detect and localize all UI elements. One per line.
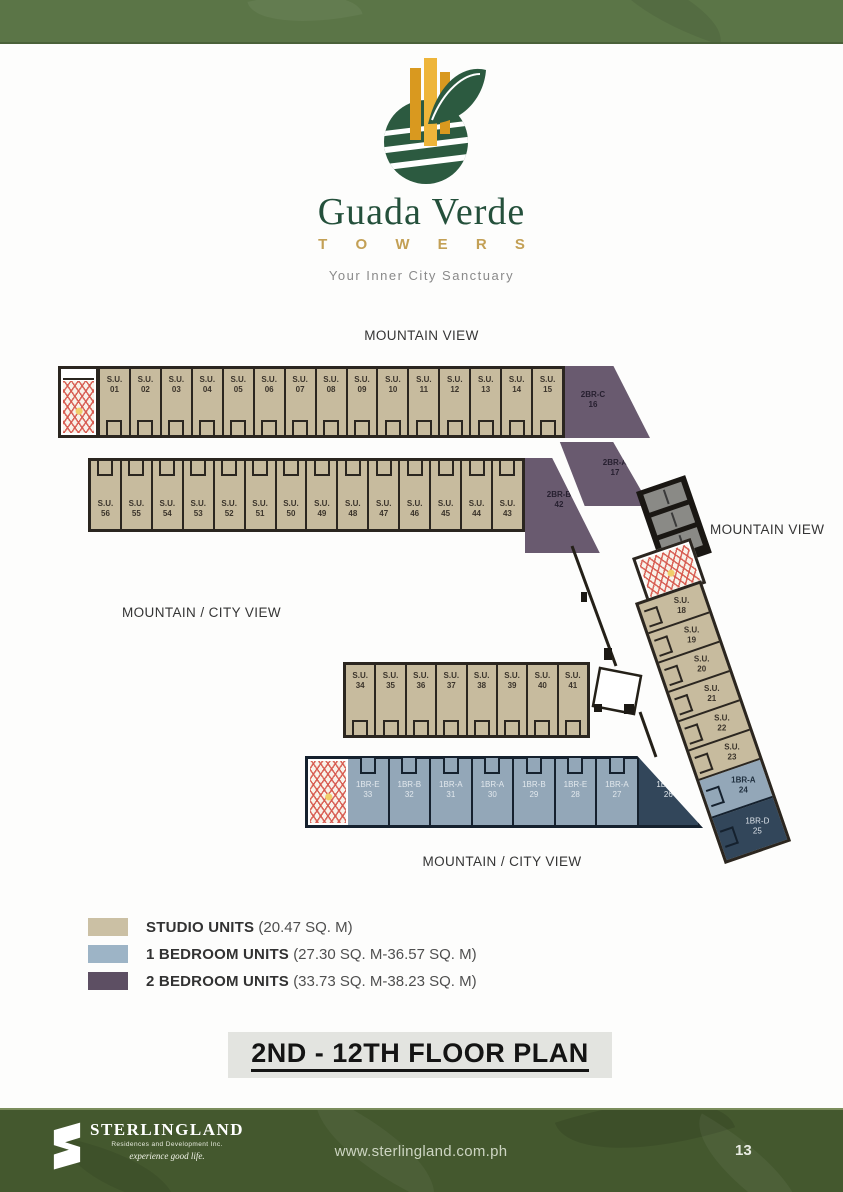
unit-label: S.U.55 xyxy=(122,499,151,519)
unit-door-alcove xyxy=(314,460,330,476)
unit-label: S.U.46 xyxy=(400,499,429,519)
unit-s-u-48: S.U.48 xyxy=(338,461,369,529)
footer-brand-tagline: experience good life. xyxy=(90,1151,244,1161)
unit-s-u-05: S.U.05 xyxy=(224,369,255,435)
unit-label: S.U.21 xyxy=(690,683,734,703)
unit-label: S.U.04 xyxy=(193,369,222,395)
unit-s-u-38: S.U.38 xyxy=(468,665,498,735)
unit-s-u-40: S.U.40 xyxy=(528,665,558,735)
unit-door-alcove xyxy=(354,420,370,436)
unit-door-alcove xyxy=(413,720,429,736)
unit-door-alcove xyxy=(261,420,277,436)
page-number: 13 xyxy=(735,1142,752,1159)
unit-s-u-11: S.U.11 xyxy=(409,369,440,435)
unit-door-alcove xyxy=(230,420,246,436)
unit-1br-a-30: 1BR-A30 xyxy=(473,759,515,825)
unit-s-u-02: S.U.02 xyxy=(131,369,162,435)
unit-door-alcove xyxy=(283,460,299,476)
unit-s-u-49: S.U.49 xyxy=(307,461,338,529)
unit-label: S.U.22 xyxy=(700,713,744,733)
unit-door-alcove xyxy=(159,460,175,476)
unit-door-alcove xyxy=(443,758,459,774)
unit-door-alcove xyxy=(323,420,339,436)
sterlingland-s-icon xyxy=(52,1120,82,1172)
unit-label: S.U.56 xyxy=(91,499,120,519)
unit-label: S.U.40 xyxy=(528,665,556,691)
unit-label: S.U.03 xyxy=(162,369,191,395)
unit-label: S.U.53 xyxy=(184,499,213,519)
website-link[interactable]: www.sterlingland.com.ph xyxy=(271,1143,571,1160)
unit-s-u-55: S.U.55 xyxy=(122,461,153,529)
unit-label: S.U.10 xyxy=(378,369,407,395)
unit-s-u-01: S.U.01 xyxy=(100,369,131,435)
unit-s-u-35: S.U.35 xyxy=(376,665,406,735)
legend-swatch-studio xyxy=(88,918,128,936)
unit-s-u-03: S.U.03 xyxy=(162,369,193,435)
brand-subtitle: T O W E R S xyxy=(0,236,843,253)
unit-2br-c-16: 2BR-C16 xyxy=(565,366,650,438)
unit-label: S.U.52 xyxy=(215,499,244,519)
unit-1br-e-33: 1BR-E33 xyxy=(348,759,390,825)
sterlingland-logo: STERLINGLAND Residences and Development … xyxy=(52,1120,244,1172)
unit-label: 1BR-D25 xyxy=(735,816,779,836)
view-label-right: MOUNTAIN VIEW xyxy=(710,522,824,537)
legend-item-1br: 1 BEDROOM UNITS (27.30 SQ. M-36.57 SQ. M… xyxy=(88,944,477,964)
unit-door-alcove xyxy=(416,420,432,436)
unit-door-alcove xyxy=(128,460,144,476)
unit-door-alcove xyxy=(469,460,485,476)
unit-door-alcove xyxy=(499,460,515,476)
unit-label: S.U.14 xyxy=(502,369,531,395)
unit-door-alcove xyxy=(292,420,308,436)
unit-s-u-51: S.U.51 xyxy=(246,461,277,529)
unit-label: 1BR-E28 xyxy=(556,780,596,800)
unit-label: 1BR-A31 xyxy=(431,780,471,800)
unit-label: 1BR-C26 xyxy=(639,780,698,800)
unit-s-u-45: S.U.45 xyxy=(431,461,462,529)
view-label-left: MOUNTAIN / CITY VIEW xyxy=(122,605,281,620)
unit-door-alcove xyxy=(385,420,401,436)
stair-hatch xyxy=(310,761,346,823)
unit-label: S.U.39 xyxy=(498,665,526,691)
unit-door-alcove xyxy=(443,720,459,736)
unit-door-alcove xyxy=(137,420,153,436)
unit-label: 1BR-B29 xyxy=(514,780,554,800)
legend-swatch-2br xyxy=(88,972,128,990)
unit-s-u-54: S.U.54 xyxy=(153,461,184,529)
unit-label: S.U.15 xyxy=(533,369,562,395)
unit-door-alcove xyxy=(190,460,206,476)
unit-s-u-34: S.U.34 xyxy=(346,665,376,735)
unit-label: S.U.45 xyxy=(431,499,460,519)
stairwell-southwest xyxy=(308,759,348,825)
unit-label: S.U.43 xyxy=(493,499,522,519)
floor-title: 2ND - 12TH FLOOR PLAN xyxy=(251,1038,589,1072)
unit-label: S.U.09 xyxy=(348,369,377,395)
unit-door-alcove xyxy=(509,420,525,436)
unit-s-u-14: S.U.14 xyxy=(502,369,533,435)
legend-item-studio: STUDIO UNITS (20.47 SQ. M) xyxy=(88,917,477,937)
unit-door-alcove xyxy=(376,460,392,476)
unit-label: S.U.49 xyxy=(307,499,336,519)
unit-label: S.U.01 xyxy=(100,369,129,395)
unit-door-alcove xyxy=(534,720,550,736)
unit-s-u-47: S.U.47 xyxy=(369,461,400,529)
unit-label: S.U.20 xyxy=(680,654,724,674)
unit-1br-e-28: 1BR-E28 xyxy=(556,759,598,825)
stairwell-northwest xyxy=(58,366,99,438)
brand-title: Guada Verde xyxy=(0,190,843,234)
unit-door-alcove xyxy=(352,720,368,736)
unit-label: S.U.19 xyxy=(669,625,713,645)
unit-s-u-43: S.U.43 xyxy=(493,461,522,529)
unit-label: S.U.18 xyxy=(659,596,703,616)
unit-2br-a-17: 2BR-A17 xyxy=(558,442,650,506)
footer-brand-name: STERLINGLAND xyxy=(90,1120,244,1140)
unit-s-u-06: S.U.06 xyxy=(255,369,286,435)
unit-s-u-53: S.U.53 xyxy=(184,461,215,529)
unit-s-u-13: S.U.13 xyxy=(471,369,502,435)
unit-door-alcove xyxy=(609,758,625,774)
unit-door-alcove xyxy=(97,460,113,476)
unit-1br-b-32: 1BR-B32 xyxy=(390,759,432,825)
unit-s-u-41: S.U.41 xyxy=(559,665,587,735)
unit-label: S.U.07 xyxy=(286,369,315,395)
unit-label: S.U.51 xyxy=(246,499,275,519)
brochure-page: Guada Verde T O W E R S Your Inner City … xyxy=(0,0,843,1192)
unit-door-alcove xyxy=(221,460,237,476)
unit-door-alcove xyxy=(567,758,583,774)
unit-label: S.U.35 xyxy=(376,665,404,691)
unit-s-u-44: S.U.44 xyxy=(462,461,493,529)
legend-swatch-1br xyxy=(88,945,128,963)
unit-s-u-04: S.U.04 xyxy=(193,369,224,435)
unit-label: S.U.34 xyxy=(346,665,374,691)
unit-label: 1BR-A27 xyxy=(597,780,637,800)
unit-door-alcove xyxy=(438,460,454,476)
leaf-decoration xyxy=(596,0,733,44)
unit-door-alcove xyxy=(504,720,520,736)
unit-label: S.U.23 xyxy=(710,742,754,762)
unit-s-u-12: S.U.12 xyxy=(440,369,471,435)
unit-label: 1BR-A30 xyxy=(473,780,513,800)
unit-s-u-09: S.U.09 xyxy=(348,369,379,435)
unit-s-u-46: S.U.46 xyxy=(400,461,431,529)
unit-door-alcove xyxy=(474,720,490,736)
unit-door-alcove xyxy=(660,758,676,774)
unit-s-u-56: S.U.56 xyxy=(91,461,122,529)
unit-door-alcove xyxy=(360,758,376,774)
stair-hatch xyxy=(63,381,94,433)
stair-landing xyxy=(63,371,94,380)
unit-label: S.U.44 xyxy=(462,499,491,519)
unit-door-alcove xyxy=(199,420,215,436)
unit-label: S.U.38 xyxy=(468,665,496,691)
unit-door-alcove xyxy=(478,420,494,436)
leaf-decoration xyxy=(247,0,362,37)
unit-s-u-50: S.U.50 xyxy=(277,461,308,529)
unit-s-u-36: S.U.36 xyxy=(407,665,437,735)
unit-label: S.U.48 xyxy=(338,499,367,519)
footer-brand-line2: Residences and Development Inc. xyxy=(90,1141,244,1148)
unit-1br-b-29: 1BR-B29 xyxy=(514,759,556,825)
unit-door-alcove xyxy=(345,460,361,476)
legend-item-2br: 2 BEDROOM UNITS (33.73 SQ. M-38.23 SQ. M… xyxy=(88,971,477,991)
unit-s-u-07: S.U.07 xyxy=(286,369,317,435)
unit-door-alcove xyxy=(484,758,500,774)
unit-row-mid-studios: S.U.34S.U.35S.U.36S.U.37S.U.38S.U.39S.U.… xyxy=(343,662,590,738)
unit-door-alcove xyxy=(540,420,556,436)
unit-door-alcove xyxy=(383,720,399,736)
unit-label: S.U.41 xyxy=(559,665,587,691)
unit-label: S.U.08 xyxy=(317,369,346,395)
unit-label: S.U.54 xyxy=(153,499,182,519)
unit-label: 1BR-E33 xyxy=(348,780,388,800)
unit-1br-a-27: 1BR-A27 xyxy=(597,759,639,825)
unit-legend: STUDIO UNITS (20.47 SQ. M) 1 BEDROOM UNI… xyxy=(88,917,477,998)
unit-label: S.U.13 xyxy=(471,369,500,395)
unit-s-u-37: S.U.37 xyxy=(437,665,467,735)
floor-title-bar: 2ND - 12TH FLOOR PLAN xyxy=(228,1032,612,1078)
unit-s-u-52: S.U.52 xyxy=(215,461,246,529)
unit-door-alcove xyxy=(252,460,268,476)
unit-door-alcove xyxy=(401,758,417,774)
unit-label: S.U.02 xyxy=(131,369,160,395)
unit-1br-c-26: 1BR-C26 xyxy=(639,759,700,825)
unit-label: S.U.06 xyxy=(255,369,284,395)
unit-row-one-bedroom: 1BR-E331BR-B321BR-A311BR-A301BR-B291BR-E… xyxy=(305,756,703,828)
unit-door-alcove xyxy=(526,758,542,774)
unit-row-second-studios: S.U.56S.U.55S.U.54S.U.53S.U.52S.U.51S.U.… xyxy=(88,458,525,532)
unit-door-alcove xyxy=(407,460,423,476)
unit-label: 1BR-B32 xyxy=(390,780,430,800)
unit-row-top-studios: S.U.01S.U.02S.U.03S.U.04S.U.05S.U.06S.U.… xyxy=(97,366,565,438)
unit-s-u-08: S.U.08 xyxy=(317,369,348,435)
unit-s-u-15: S.U.15 xyxy=(533,369,562,435)
unit-door-alcove xyxy=(168,420,184,436)
view-label-bottom: MOUNTAIN / CITY VIEW xyxy=(0,854,843,869)
unit-label: S.U.36 xyxy=(407,665,435,691)
brand-tagline: Your Inner City Sanctuary xyxy=(0,268,843,283)
unit-label: S.U.11 xyxy=(409,369,438,395)
unit-door-alcove xyxy=(565,720,581,736)
top-green-band xyxy=(0,0,843,44)
view-label-top: MOUNTAIN VIEW xyxy=(0,328,843,343)
unit-1br-a-31: 1BR-A31 xyxy=(431,759,473,825)
unit-door-alcove xyxy=(447,420,463,436)
unit-s-u-10: S.U.10 xyxy=(378,369,409,435)
unit-label: S.U.47 xyxy=(369,499,398,519)
unit-label: S.U.12 xyxy=(440,369,469,395)
unit-label: S.U.37 xyxy=(437,665,465,691)
unit-door-alcove xyxy=(106,420,122,436)
unit-label: S.U.05 xyxy=(224,369,253,395)
unit-s-u-39: S.U.39 xyxy=(498,665,528,735)
unit-label: 1BR-A24 xyxy=(721,776,765,796)
guada-verde-logo-icon xyxy=(368,54,490,193)
unit-label: S.U.50 xyxy=(277,499,306,519)
